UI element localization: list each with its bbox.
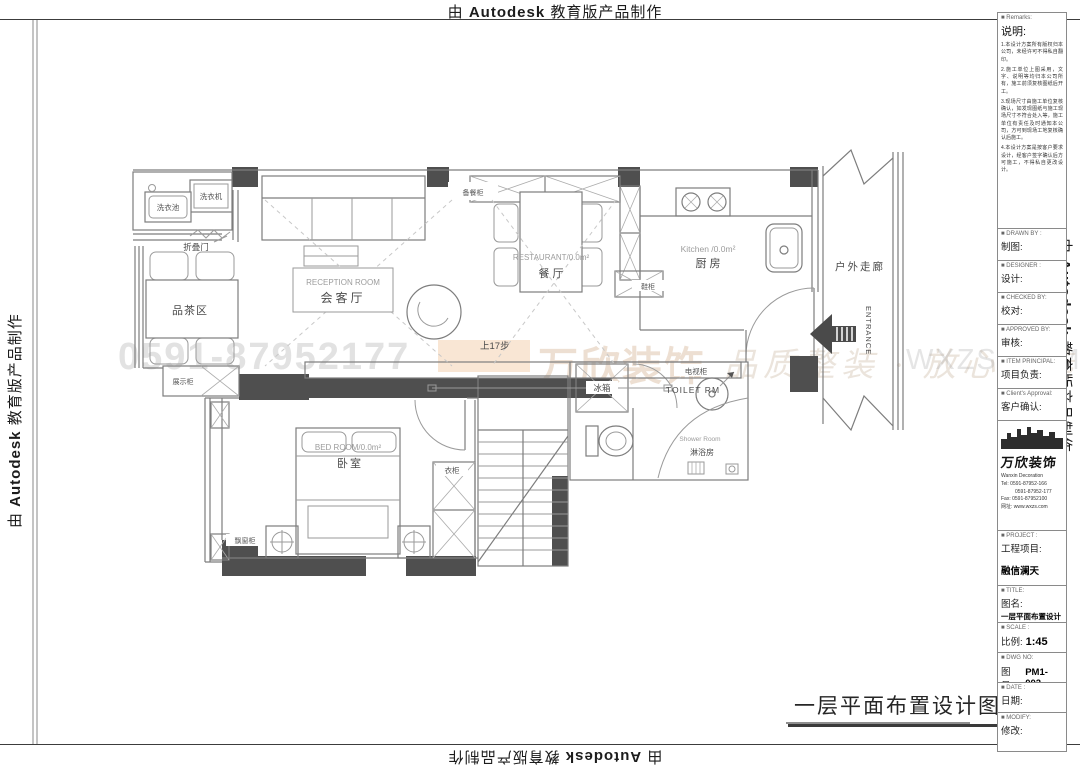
- shower-cn-label: 淋浴房: [690, 447, 714, 457]
- company-web: 网址: www.wxzs.com: [1001, 504, 1063, 512]
- restaurant-cn-label: 餐 厅: [538, 266, 563, 280]
- tea-area-label: 品茶区: [172, 304, 208, 317]
- sideboard-label: 备餐柜: [463, 188, 484, 197]
- field-checked-by: ■ CHECKED BY: 校对:: [998, 293, 1066, 325]
- tv-cabinet-label: 电视柜: [685, 366, 708, 376]
- reception-label-box: [293, 268, 393, 312]
- remarks-note: 3.现场尺寸由施工单位复核确认，如发现图纸与施工现场尺寸不符合处入等，施工单位有…: [1001, 99, 1063, 143]
- cad-sheet: { "banner": { "prefix": "由", "brand": "A…: [0, 0, 1080, 764]
- remarks-note: 2.施工单位上图采用，文字、说明等均归本公司所有，施工前须复核图纸后开工。: [1001, 67, 1063, 96]
- company-name-en: Wanxin Decoration: [1001, 473, 1063, 481]
- date-section: ■ DATE : 日期:: [998, 683, 1066, 713]
- bedroom-cn-label: 卧室: [337, 456, 363, 470]
- remarks-note: 4.本设计方案是按客户要求设计，经客户签字确认后方可施工，不得私自更改设计。: [1001, 145, 1063, 174]
- display-cabinet-label: 展示柜: [173, 377, 194, 386]
- reception-cn-label: 会客厅: [320, 290, 365, 305]
- remarks-note: 1.本设计方案所有版权归本公司，未经许可不得私自翻印。: [1001, 42, 1063, 64]
- restaurant-en-label: RESTAURANT/0.0m²: [513, 253, 590, 262]
- company-tel2: 0591-87952-177: [1001, 489, 1063, 497]
- modify-section: ■ MODIFY: 修改:: [998, 713, 1066, 749]
- dwg-no-value: PM1-002: [1025, 667, 1063, 683]
- company-name-cn: 万欣装饰: [1000, 452, 1064, 471]
- remarks-section: ■ Remarks: 说明: 1.本设计方案所有版权归本公司，未经许可不得私自翻…: [998, 13, 1066, 229]
- scale-section: ■ SCALE : 比例: 1:45: [998, 623, 1066, 653]
- kitchen-cn-label: 厨 房: [695, 257, 720, 270]
- shower-en-label: Shower Room: [679, 436, 720, 443]
- scale-value: 1:45: [1026, 636, 1048, 648]
- kitchen-en-label: Kitchen /0.0m²: [681, 244, 736, 254]
- label-backings: [164, 280, 718, 546]
- company-tel1: Tel: 0591-87952-166: [1001, 481, 1063, 489]
- company-fax: Fax: 0591-87952100: [1001, 496, 1063, 504]
- shoe-cabinet-label: 鞋柜: [641, 282, 655, 291]
- project-section: ■ PROJECT : 工程项目: 融信澜天: [998, 531, 1066, 586]
- company-skyline-logo: [1001, 423, 1063, 449]
- company-section: 万欣装饰 Wanxin Decoration Tel: 0591-87952-1…: [998, 421, 1066, 531]
- stairs-up-label: 上17步: [480, 341, 510, 352]
- folding-door-label: 折叠门: [183, 242, 209, 252]
- drawing-title-section: ■ TITLE: 图名: 一层平面布置设计图: [998, 586, 1066, 623]
- floor-plan-canvas: 洗衣池 洗衣机 折叠门 品茶区 RECEPTION ROOM 会客厅 备餐柜 R…: [0, 0, 1080, 764]
- bedroom-en-label: BED ROOM/0.0m²: [315, 443, 382, 452]
- field-approved-by: ■ APPROVED BY: 审核:: [998, 325, 1066, 357]
- entrance-arrow: [810, 314, 856, 354]
- laundry-sink-label: 洗衣池: [157, 202, 180, 212]
- field-designer: ■ DESIGNER : 设计:: [998, 261, 1066, 293]
- dwg-no-section: ■ DWG NO: 图号: PM1-002: [998, 653, 1066, 683]
- wardrobe-label: 衣柜: [445, 465, 460, 475]
- field-drawn-by: ■ DRAWN BY : 制图:: [998, 229, 1066, 261]
- field-item-principal: ■ ITEM PRINCIPAL: 项目负责:: [998, 357, 1066, 389]
- reception-en-label: RECEPTION ROOM: [306, 278, 380, 287]
- drawing-title-value: 一层平面布置设计图: [1001, 611, 1063, 623]
- washer-label: 洗衣机: [200, 191, 223, 201]
- remarks-header-cn: 说明:: [1001, 23, 1063, 39]
- toilet-label: TOILET RM: [666, 385, 720, 395]
- fridge-label: 冰箱: [593, 383, 611, 393]
- title-block: ■ Remarks: 说明: 1.本设计方案所有版权归本公司，未经许可不得私自翻…: [997, 12, 1067, 752]
- walls-thin: [133, 150, 903, 566]
- entrance-label: ENTRANCE: [864, 306, 873, 355]
- corridor-label: 户外走廊: [835, 260, 885, 273]
- remarks-header-en: ■ Remarks:: [1001, 15, 1063, 21]
- bay-cabinet-label: 飘窗柜: [235, 536, 256, 545]
- field-client-approval: ■ Client's Approval: 客户确认:: [998, 389, 1066, 421]
- project-name: 融信澜天: [1001, 563, 1063, 577]
